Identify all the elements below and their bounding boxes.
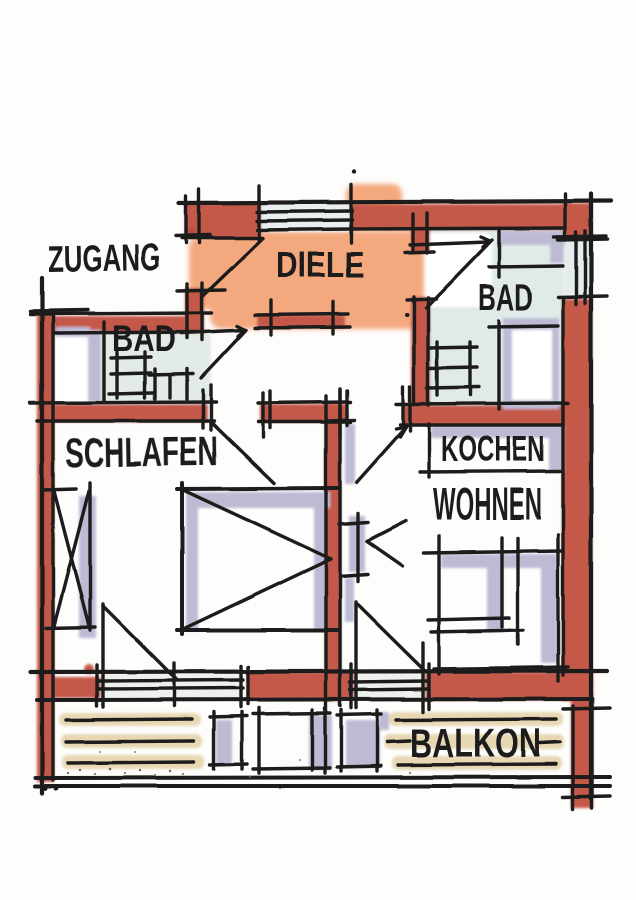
- svg-text:WOHNEN: WOHNEN: [433, 478, 542, 530]
- svg-text:KOCHEN: KOCHEN: [441, 428, 545, 469]
- svg-text:BALKON: BALKON: [410, 720, 541, 766]
- svg-text:DIELE: DIELE: [276, 244, 364, 285]
- svg-text:BAD: BAD: [478, 277, 533, 318]
- svg-text:SCHLAFEN: SCHLAFEN: [65, 428, 219, 477]
- svg-text:ZUGANG: ZUGANG: [48, 237, 161, 281]
- svg-text:BAD: BAD: [112, 318, 176, 359]
